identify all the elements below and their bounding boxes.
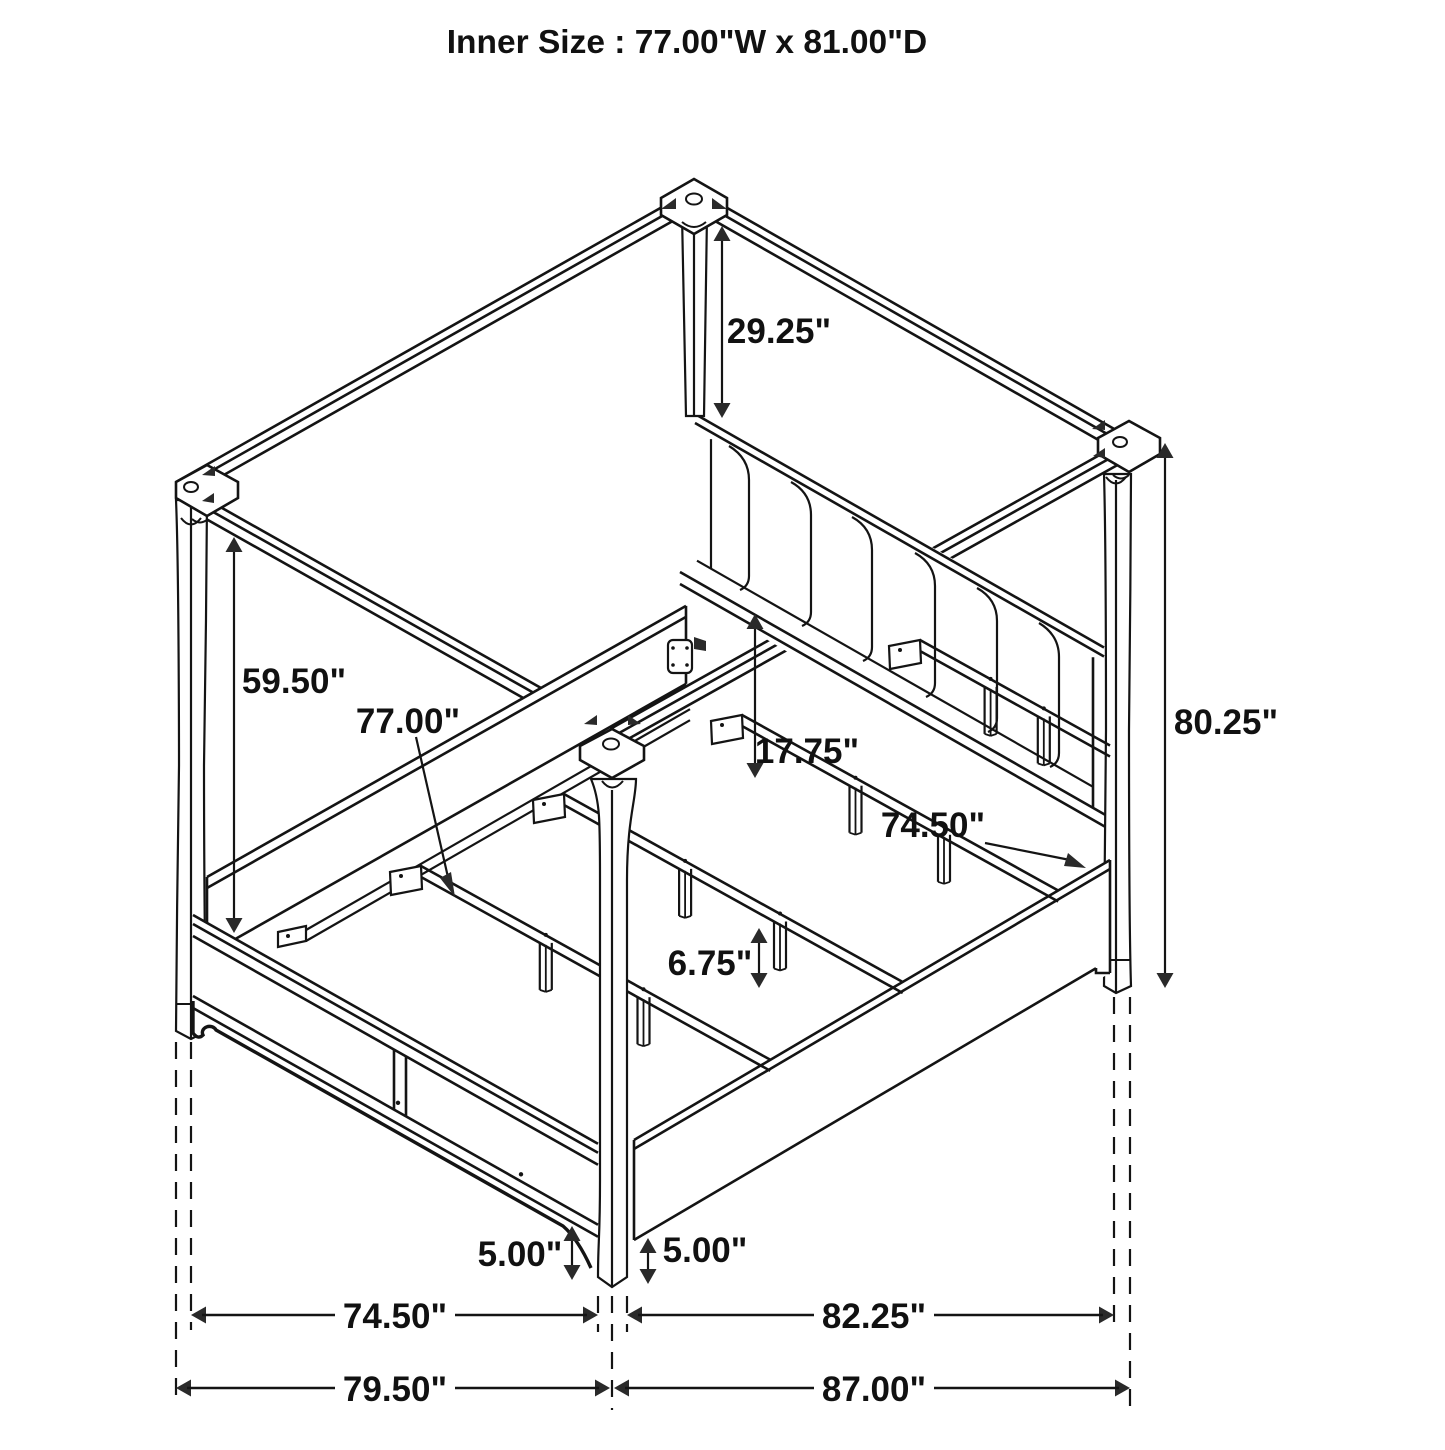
svg-text:74.50": 74.50": [343, 1297, 447, 1336]
svg-text:79.50": 79.50": [343, 1370, 447, 1409]
svg-text:5.00": 5.00": [478, 1235, 563, 1274]
svg-text:74.50": 74.50": [881, 806, 985, 845]
svg-text:77.00": 77.00": [356, 702, 460, 741]
svg-text:82.25": 82.25": [822, 1297, 926, 1336]
svg-text:5.00": 5.00": [663, 1231, 748, 1270]
svg-text:6.75": 6.75": [668, 944, 753, 983]
svg-text:59.50": 59.50": [242, 662, 346, 701]
svg-text:87.00": 87.00": [822, 1370, 926, 1409]
svg-text:Inner Size : 77.00"W x 81.00"D: Inner Size : 77.00"W x 81.00"D: [447, 24, 928, 61]
svg-text:17.75": 17.75": [755, 732, 859, 771]
svg-text:80.25": 80.25": [1174, 703, 1278, 742]
svg-text:29.25": 29.25": [727, 312, 831, 351]
